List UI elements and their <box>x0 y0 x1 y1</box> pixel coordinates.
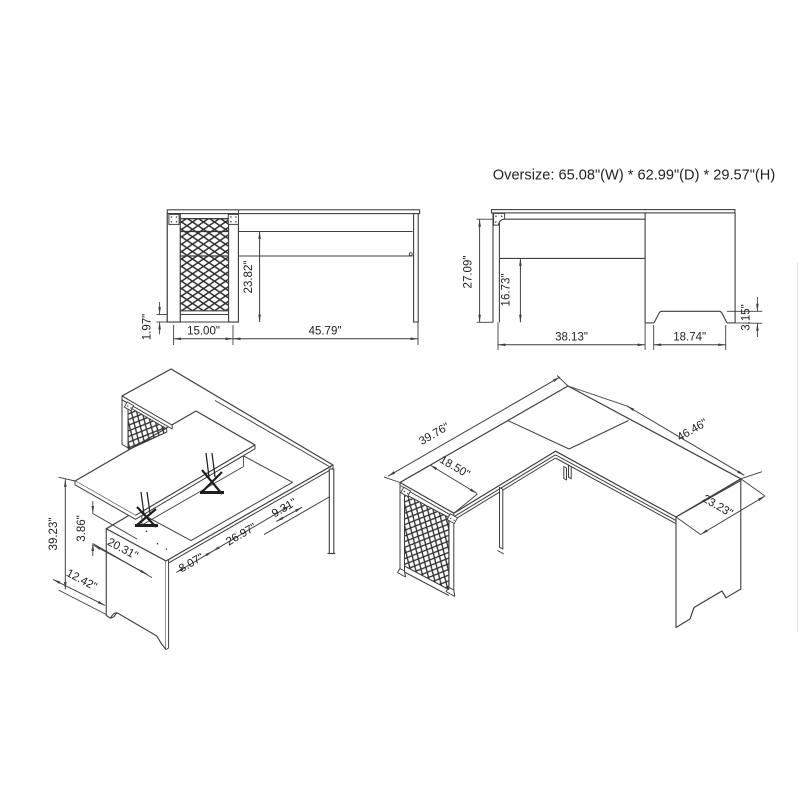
svg-text:27.09": 27.09" <box>463 256 475 289</box>
svg-text:38.13": 38.13" <box>555 331 588 343</box>
svg-text:12.42": 12.42" <box>64 567 99 593</box>
svg-text:45.79": 45.79" <box>309 326 342 338</box>
svg-text:Oversize: 65.08"(W) * 62.99"(D: Oversize: 65.08"(W) * 62.99"(D) * 29.57"… <box>493 168 775 184</box>
svg-text:18.74": 18.74" <box>673 331 706 343</box>
svg-text:26.97": 26.97" <box>224 521 258 548</box>
svg-text:16.73": 16.73" <box>501 274 513 307</box>
svg-text:1.97": 1.97" <box>142 314 154 340</box>
svg-text:39.23": 39.23" <box>48 518 60 551</box>
svg-text:3.15": 3.15" <box>741 304 753 330</box>
svg-text:15.00": 15.00" <box>187 326 220 338</box>
svg-text:39.76": 39.76" <box>417 421 451 448</box>
svg-text:46.46": 46.46" <box>675 417 709 444</box>
svg-text:3.86": 3.86" <box>76 515 88 541</box>
svg-text:23.82": 23.82" <box>243 261 255 294</box>
